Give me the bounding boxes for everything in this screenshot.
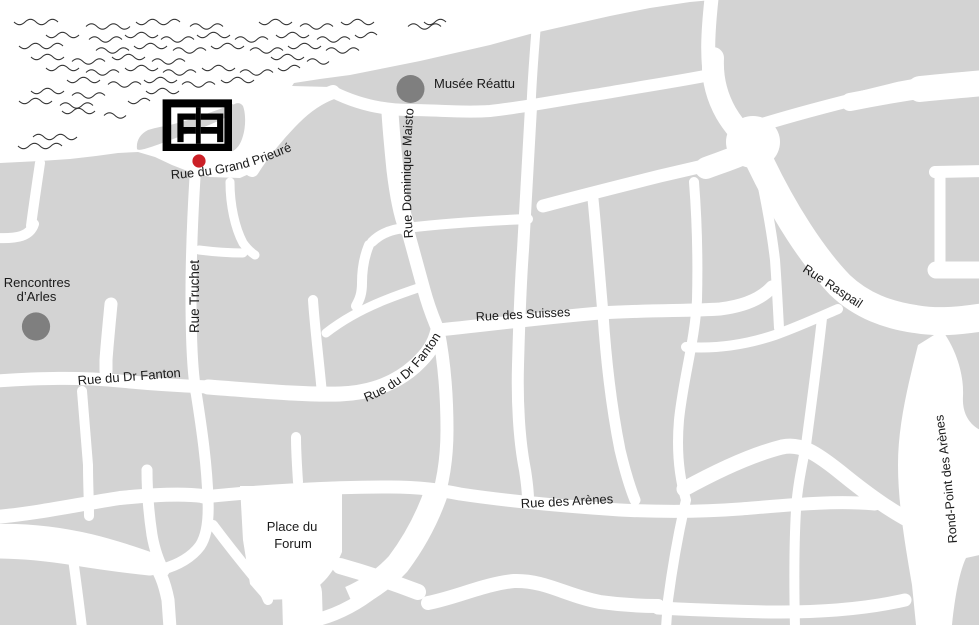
svg-text:Musée Réattu: Musée Réattu [434, 76, 515, 91]
svg-text:d’Arles: d’Arles [17, 289, 57, 304]
svg-text:Place du: Place du [267, 519, 318, 534]
svg-text:Rue Truchet: Rue Truchet [187, 260, 202, 333]
svg-text:Forum: Forum [274, 536, 312, 551]
svg-text:Rencontres: Rencontres [4, 275, 71, 290]
